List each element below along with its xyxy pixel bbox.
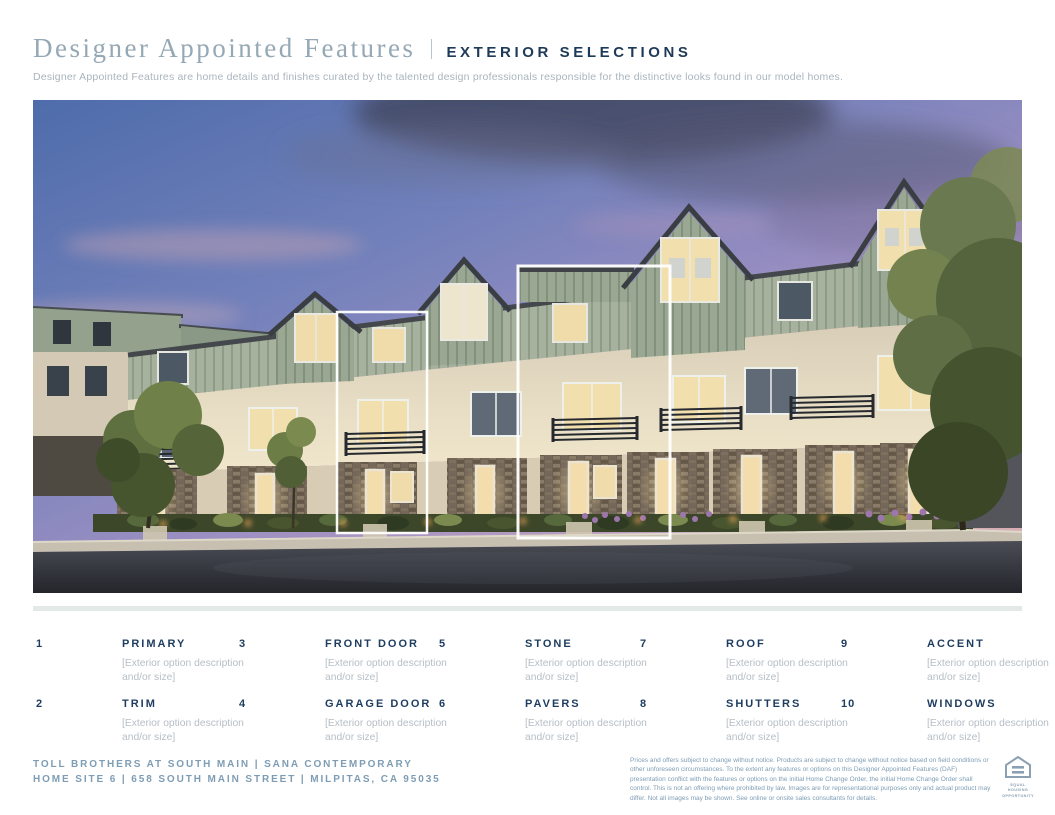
feature-number: 5 (439, 638, 446, 650)
header: Designer Appointed Features EXTERIOR SEL… (33, 33, 1023, 83)
features-legend: 1 PRIMARY [Exterior option description a… (33, 638, 1038, 758)
feature-item-front-door: 3 FRONT DOOR [Exterior option descriptio… (236, 638, 436, 698)
feature-description: [Exterior option description and/or size… (927, 717, 1055, 744)
community-line-2: HOME SITE 6 | 658 SOUTH MAIN STREET | MI… (33, 772, 441, 787)
townhome-rendering (33, 100, 1022, 593)
feature-description: [Exterior option description and/or size… (122, 717, 250, 744)
feature-number: 1 (36, 638, 43, 650)
community-line-1: TOLL BROTHERS AT SOUTH MAIN | SANA CONTE… (33, 757, 441, 772)
feature-label: STONE (525, 638, 637, 650)
feature-description: [Exterior option description and/or size… (122, 657, 250, 684)
feature-number: 9 (841, 638, 848, 650)
feature-item-trim: 2 TRIM [Exterior option description and/… (33, 698, 236, 758)
feature-item-pavers: 6 PAVERS [Exterior option description an… (436, 698, 637, 758)
feature-number: 6 (439, 698, 446, 710)
page-title: Designer Appointed Features EXTERIOR SEL… (33, 33, 1023, 64)
equal-housing-text-2: OPPORTUNITY (1000, 794, 1036, 799)
feature-description: [Exterior option description and/or size… (325, 717, 453, 744)
footer-community-info: TOLL BROTHERS AT SOUTH MAIN | SANA CONTE… (33, 757, 441, 787)
feature-item-primary: 1 PRIMARY [Exterior option description a… (33, 638, 236, 698)
feature-label: TRIM (122, 698, 236, 710)
feature-item-garage-door: 4 GARAGE DOOR [Exterior option descripti… (236, 698, 436, 758)
page-root: Designer Appointed Features EXTERIOR SEL… (0, 0, 1055, 815)
feature-label: SHUTTERS (726, 698, 838, 710)
feature-number: 4 (239, 698, 246, 710)
feature-description: [Exterior option description and/or size… (525, 717, 653, 744)
feature-label: WINDOWS (927, 698, 1023, 710)
feature-description: [Exterior option description and/or size… (927, 657, 1055, 684)
page-subtitle: Designer Appointed Features are home det… (33, 71, 1023, 83)
feature-label: PAVERS (525, 698, 637, 710)
feature-description: [Exterior option description and/or size… (325, 657, 453, 684)
feature-item-shutters: 8 SHUTTERS [Exterior option description … (637, 698, 838, 758)
feature-label: FRONT DOOR (325, 638, 436, 650)
feature-description: [Exterior option description and/or size… (726, 657, 854, 684)
section-divider (33, 606, 1022, 611)
legal-disclaimer: Prices and offers subject to change with… (630, 756, 992, 803)
feature-label: ACCENT (927, 638, 1023, 650)
feature-number: 8 (640, 698, 647, 710)
feature-label: PRIMARY (122, 638, 236, 650)
feature-description: [Exterior option description and/or size… (726, 717, 854, 744)
title-section-label: EXTERIOR SELECTIONS (446, 44, 691, 61)
feature-item-accent: 9 ACCENT [Exterior option description an… (838, 638, 1023, 698)
feature-number: 10 (841, 698, 855, 710)
feature-label: ROOF (726, 638, 838, 650)
equal-housing-text-1: EQUAL HOUSING (1000, 783, 1036, 794)
feature-number: 7 (640, 638, 647, 650)
feature-item-windows: 10 WINDOWS [Exterior option description … (838, 698, 1023, 758)
feature-number: 3 (239, 638, 246, 650)
feature-item-stone: 5 STONE [Exterior option description and… (436, 638, 637, 698)
title-separator (431, 39, 432, 59)
title-serif: Designer Appointed Features (33, 33, 415, 64)
feature-number: 2 (36, 698, 43, 710)
hero-image (33, 100, 1022, 593)
feature-item-roof: 7 ROOF [Exterior option description and/… (637, 638, 838, 698)
feature-description: [Exterior option description and/or size… (525, 657, 653, 684)
feature-label: GARAGE DOOR (325, 698, 436, 710)
equal-housing-house-icon (1005, 756, 1031, 778)
equal-housing-logo: EQUAL HOUSING OPPORTUNITY (1000, 756, 1036, 799)
